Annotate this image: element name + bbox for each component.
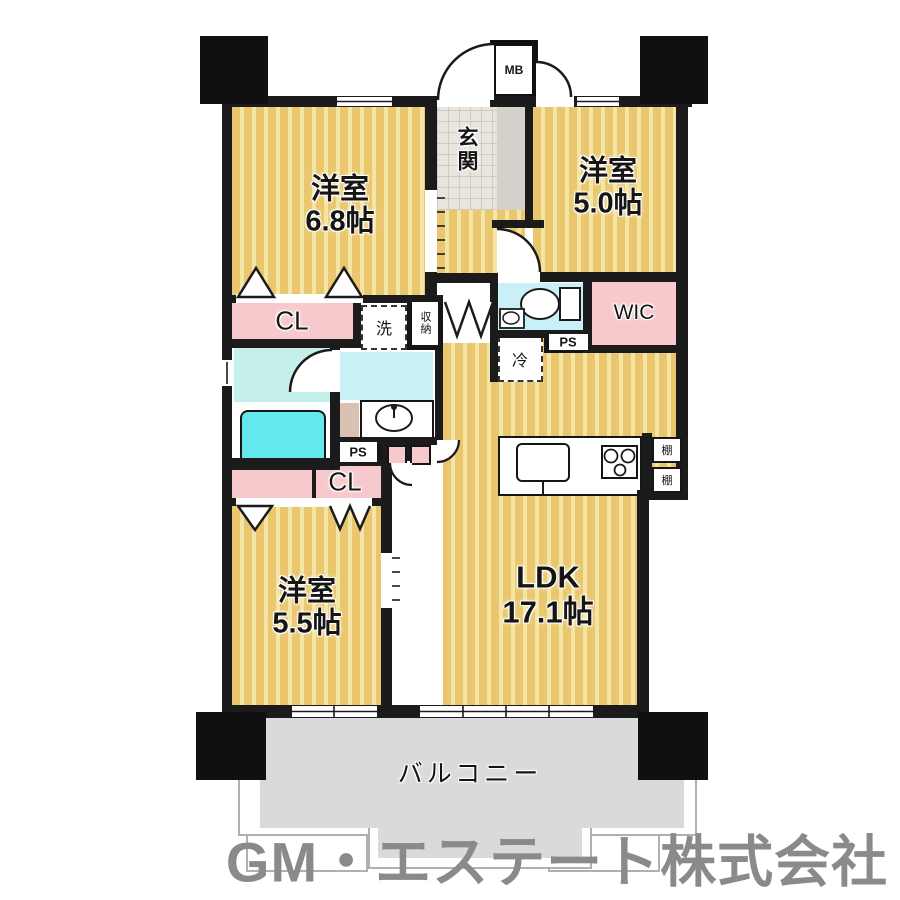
label-bedroom3: 洋室 5.5帖 <box>272 576 341 641</box>
label-ps2: PS <box>559 335 576 350</box>
closet1-accordion-icon <box>236 268 363 303</box>
label-laundry: 洗 <box>376 315 392 339</box>
pillar-bottom-left <box>196 712 266 780</box>
entrance-door-icon <box>438 44 494 100</box>
bedroom2-size: 5.0帖 <box>573 188 642 220</box>
bedroom1-size: 6.8帖 <box>305 206 374 238</box>
label-shelf1: 棚 <box>662 442 673 458</box>
sliding-door-ticks <box>392 198 445 600</box>
bedroom2-name: 洋室 <box>579 156 637 188</box>
label-fridge: 冷 <box>512 347 528 371</box>
closet2-accordion-icon <box>236 498 372 530</box>
label-balcony: バルコニー <box>398 754 543 790</box>
bedroom3-size: 5.5帖 <box>272 608 341 640</box>
pillar-bottom-right <box>638 712 708 780</box>
label-ldk: LDK 17.1帖 <box>502 560 593 629</box>
label-closet1: CL <box>275 306 308 337</box>
floorplan: 洋室 6.8帖 洋室 5.0帖 洋室 5.5帖 LDK 17.1帖 玄関 バルコ… <box>0 0 900 900</box>
ldk-door-icon <box>390 440 459 485</box>
label-closet2: CL <box>328 467 361 498</box>
label-entrance: 玄関 <box>451 126 481 174</box>
storage-bifold-icon <box>445 302 493 336</box>
corridor-door-icon <box>497 229 540 272</box>
bedroom3-name: 洋室 <box>278 576 336 608</box>
label-shelf2: 棚 <box>662 472 673 488</box>
pillar-top-left <box>200 36 268 104</box>
label-bedroom1: 洋室 6.8帖 <box>305 174 374 239</box>
label-storage: 収納 <box>417 311 433 335</box>
mb-door-icon <box>536 62 571 97</box>
bedroom1-name: 洋室 <box>311 174 369 206</box>
toilet-icon <box>500 288 580 328</box>
label-bedroom2: 洋室 5.0帖 <box>573 156 642 221</box>
wash-basin-icon <box>376 404 412 431</box>
ldk-size: 17.1帖 <box>502 595 593 630</box>
label-ps1: PS <box>349 445 366 460</box>
ldk-name: LDK <box>516 560 580 595</box>
label-mb: MB <box>505 63 524 77</box>
kitchen-fixtures-icon <box>543 450 635 495</box>
label-wic: WIC <box>614 301 655 325</box>
bathroom-door-icon <box>290 350 332 392</box>
watermark-text: GM・エステート株式会社 <box>226 818 888 899</box>
pillar-top-right <box>640 36 708 104</box>
